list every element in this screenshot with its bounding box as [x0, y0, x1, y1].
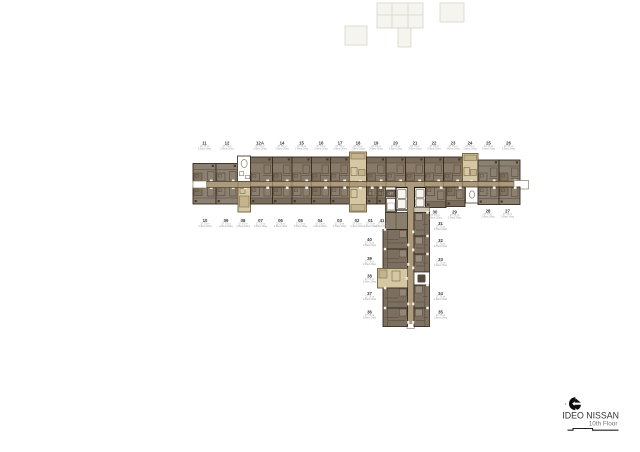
svg-text:2-Bed 26sq: 2-Bed 26sq: [434, 297, 448, 301]
svg-text:2-Bed 26sq: 2-Bed 26sq: [351, 147, 365, 151]
svg-text:2-Bed 26sq: 2-Bed 26sq: [434, 263, 448, 267]
svg-text:2-Bed 26sq: 2-Bed 26sq: [389, 147, 403, 151]
svg-text:2-Bed 26sq: 2-Bed 26sq: [313, 224, 327, 228]
svg-text:2-Bed 26sq: 2-Bed 26sq: [448, 216, 462, 220]
svg-text:2-Bed 26sq: 2-Bed 26sq: [198, 147, 212, 151]
svg-text:2-Bed 26sq: 2-Bed 26sq: [502, 147, 516, 151]
svg-text:2-Bed 26sq: 2-Bed 26sq: [350, 224, 364, 228]
svg-text:2-Bed 26sq: 2-Bed 26sq: [275, 147, 289, 151]
svg-text:2-Bed 26sq: 2-Bed 26sq: [333, 147, 347, 151]
svg-text:10th Floor: 10th Floor: [589, 421, 619, 428]
svg-text:2-Bed 26sq: 2-Bed 26sq: [254, 224, 268, 228]
svg-text:2-Bed 26sq: 2-Bed 26sq: [253, 147, 267, 151]
svg-text:2-Bed 26sq: 2-Bed 26sq: [434, 244, 448, 248]
svg-text:2-Bed 26sq: 2-Bed 26sq: [375, 224, 389, 228]
svg-text:2-Bed 26sq: 2-Bed 26sq: [363, 316, 377, 320]
svg-text:2-Bed 26sq: 2-Bed 26sq: [219, 224, 233, 228]
svg-text:2-Bed 26sq: 2-Bed 26sq: [481, 215, 495, 219]
svg-text:2-Bed 26sq: 2-Bed 26sq: [220, 147, 234, 151]
svg-text:2-Bed 26sq: 2-Bed 26sq: [428, 216, 442, 220]
svg-text:2-Bed 26sq: 2-Bed 26sq: [408, 147, 422, 151]
svg-text:IDEO NISSAN: IDEO NISSAN: [562, 411, 619, 421]
svg-text:2-Bed 26sq: 2-Bed 26sq: [295, 147, 309, 151]
svg-text:2-Bed 26sq: 2-Bed 26sq: [363, 243, 377, 247]
svg-text:2-Bed 26sq: 2-Bed 26sq: [501, 215, 515, 219]
svg-text:2-Bed 26sq: 2-Bed 26sq: [434, 227, 448, 231]
svg-text:2-Bed 26sq: 2-Bed 26sq: [363, 280, 377, 284]
svg-text:2-Bed 26sq: 2-Bed 26sq: [363, 262, 377, 266]
svg-text:2-Bed 26sq: 2-Bed 26sq: [294, 224, 308, 228]
svg-text:2-Bed 26sq: 2-Bed 26sq: [198, 224, 212, 228]
svg-text:2-Bed 26sq: 2-Bed 26sq: [434, 316, 448, 320]
svg-text:2-Bed 26sq: 2-Bed 26sq: [363, 297, 377, 301]
svg-text:2-Bed 26sq: 2-Bed 26sq: [369, 147, 383, 151]
svg-text:2-Bed 26sq: 2-Bed 26sq: [333, 224, 347, 228]
svg-text:2-Bed 26sq: 2-Bed 26sq: [446, 147, 460, 151]
svg-text:2-Bed 26sq: 2-Bed 26sq: [274, 224, 288, 228]
svg-text:2-Bed 26sq: 2-Bed 26sq: [236, 224, 250, 228]
svg-text:2-Bed 26sq: 2-Bed 26sq: [482, 147, 496, 151]
svg-text:2-Bed 26sq: 2-Bed 26sq: [427, 147, 441, 151]
svg-text:2-Bed 26sq: 2-Bed 26sq: [463, 147, 477, 151]
svg-text:LIFT: LIFT: [389, 194, 394, 196]
svg-text:2-Bed 26sq: 2-Bed 26sq: [314, 147, 328, 151]
